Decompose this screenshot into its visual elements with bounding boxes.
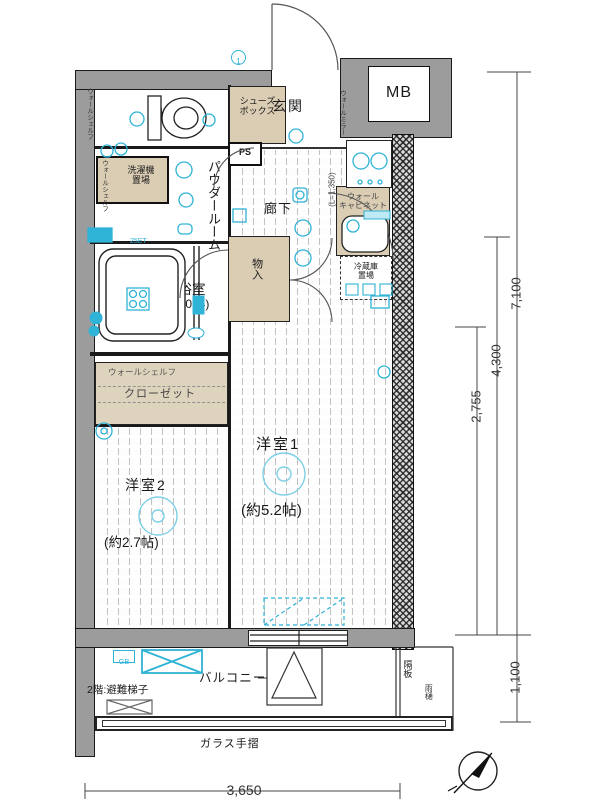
entrance-door-arc	[272, 4, 338, 70]
ceiling-lights	[139, 453, 305, 535]
balcony-partition-line	[396, 647, 453, 731]
ladder-box	[107, 700, 152, 714]
toilet-fixture	[148, 96, 206, 140]
linework-overlay	[0, 0, 600, 800]
window-side-symbol	[264, 598, 344, 625]
sink	[342, 211, 390, 252]
toilet-door-arc	[214, 148, 254, 188]
storage-door-arcs	[290, 238, 332, 322]
floor-plan: MB シューズ ボックス PS ウォールシェルフ 洗濯機 置場 25ET 物入 …	[0, 0, 600, 800]
compass-icon	[448, 752, 497, 793]
stove-burners	[353, 153, 387, 184]
even-floor-box	[267, 648, 322, 705]
fridge-outlets	[346, 284, 392, 295]
bath-door-arc	[180, 250, 228, 298]
escape-hatch-box	[142, 650, 202, 673]
room1-window-glazing	[250, 630, 347, 646]
